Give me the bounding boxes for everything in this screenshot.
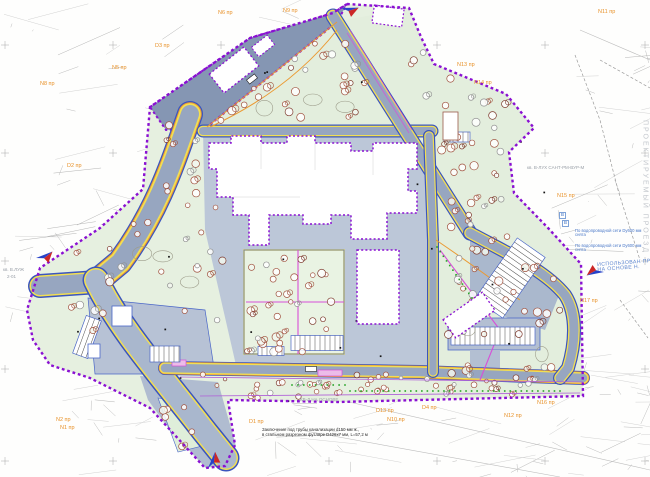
site-plan-canvas: N6 прN9 прN11 прD3 прN5 прN8 прD2 прN13 … [0,0,650,477]
north-arrow-right [587,265,605,277]
south-building-footprint [357,250,399,324]
master-plan-svg [0,0,650,477]
